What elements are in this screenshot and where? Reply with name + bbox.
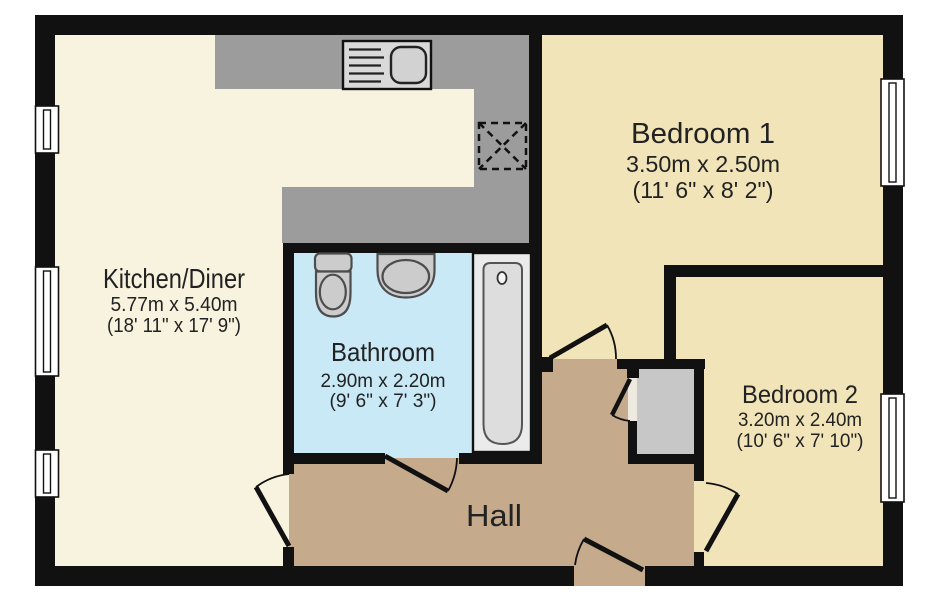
svg-text:(18' 11" x 17' 9"): (18' 11" x 17' 9") — [107, 315, 241, 337]
svg-text:Bathroom: Bathroom — [331, 337, 435, 367]
svg-text:Kitchen/Diner: Kitchen/Diner — [103, 263, 245, 294]
svg-text:(11' 6" x 8' 2"): (11' 6" x 8' 2") — [633, 177, 774, 203]
svg-text:(10' 6" x 7' 10"): (10' 6" x 7' 10") — [737, 431, 864, 452]
svg-text:3.50m x 2.50m: 3.50m x 2.50m — [626, 151, 780, 177]
svg-text:Hall: Hall — [466, 498, 522, 533]
svg-text:2.90m x 2.20m: 2.90m x 2.20m — [321, 371, 446, 392]
svg-text:Bedroom 2: Bedroom 2 — [742, 381, 858, 409]
svg-text:Bedroom 1: Bedroom 1 — [631, 118, 775, 150]
svg-text:(9' 6" x 7' 3"): (9' 6" x 7' 3") — [330, 391, 437, 412]
svg-text:5.77m x 5.40m: 5.77m x 5.40m — [111, 294, 238, 316]
svg-text:3.20m x 2.40m: 3.20m x 2.40m — [738, 410, 862, 431]
